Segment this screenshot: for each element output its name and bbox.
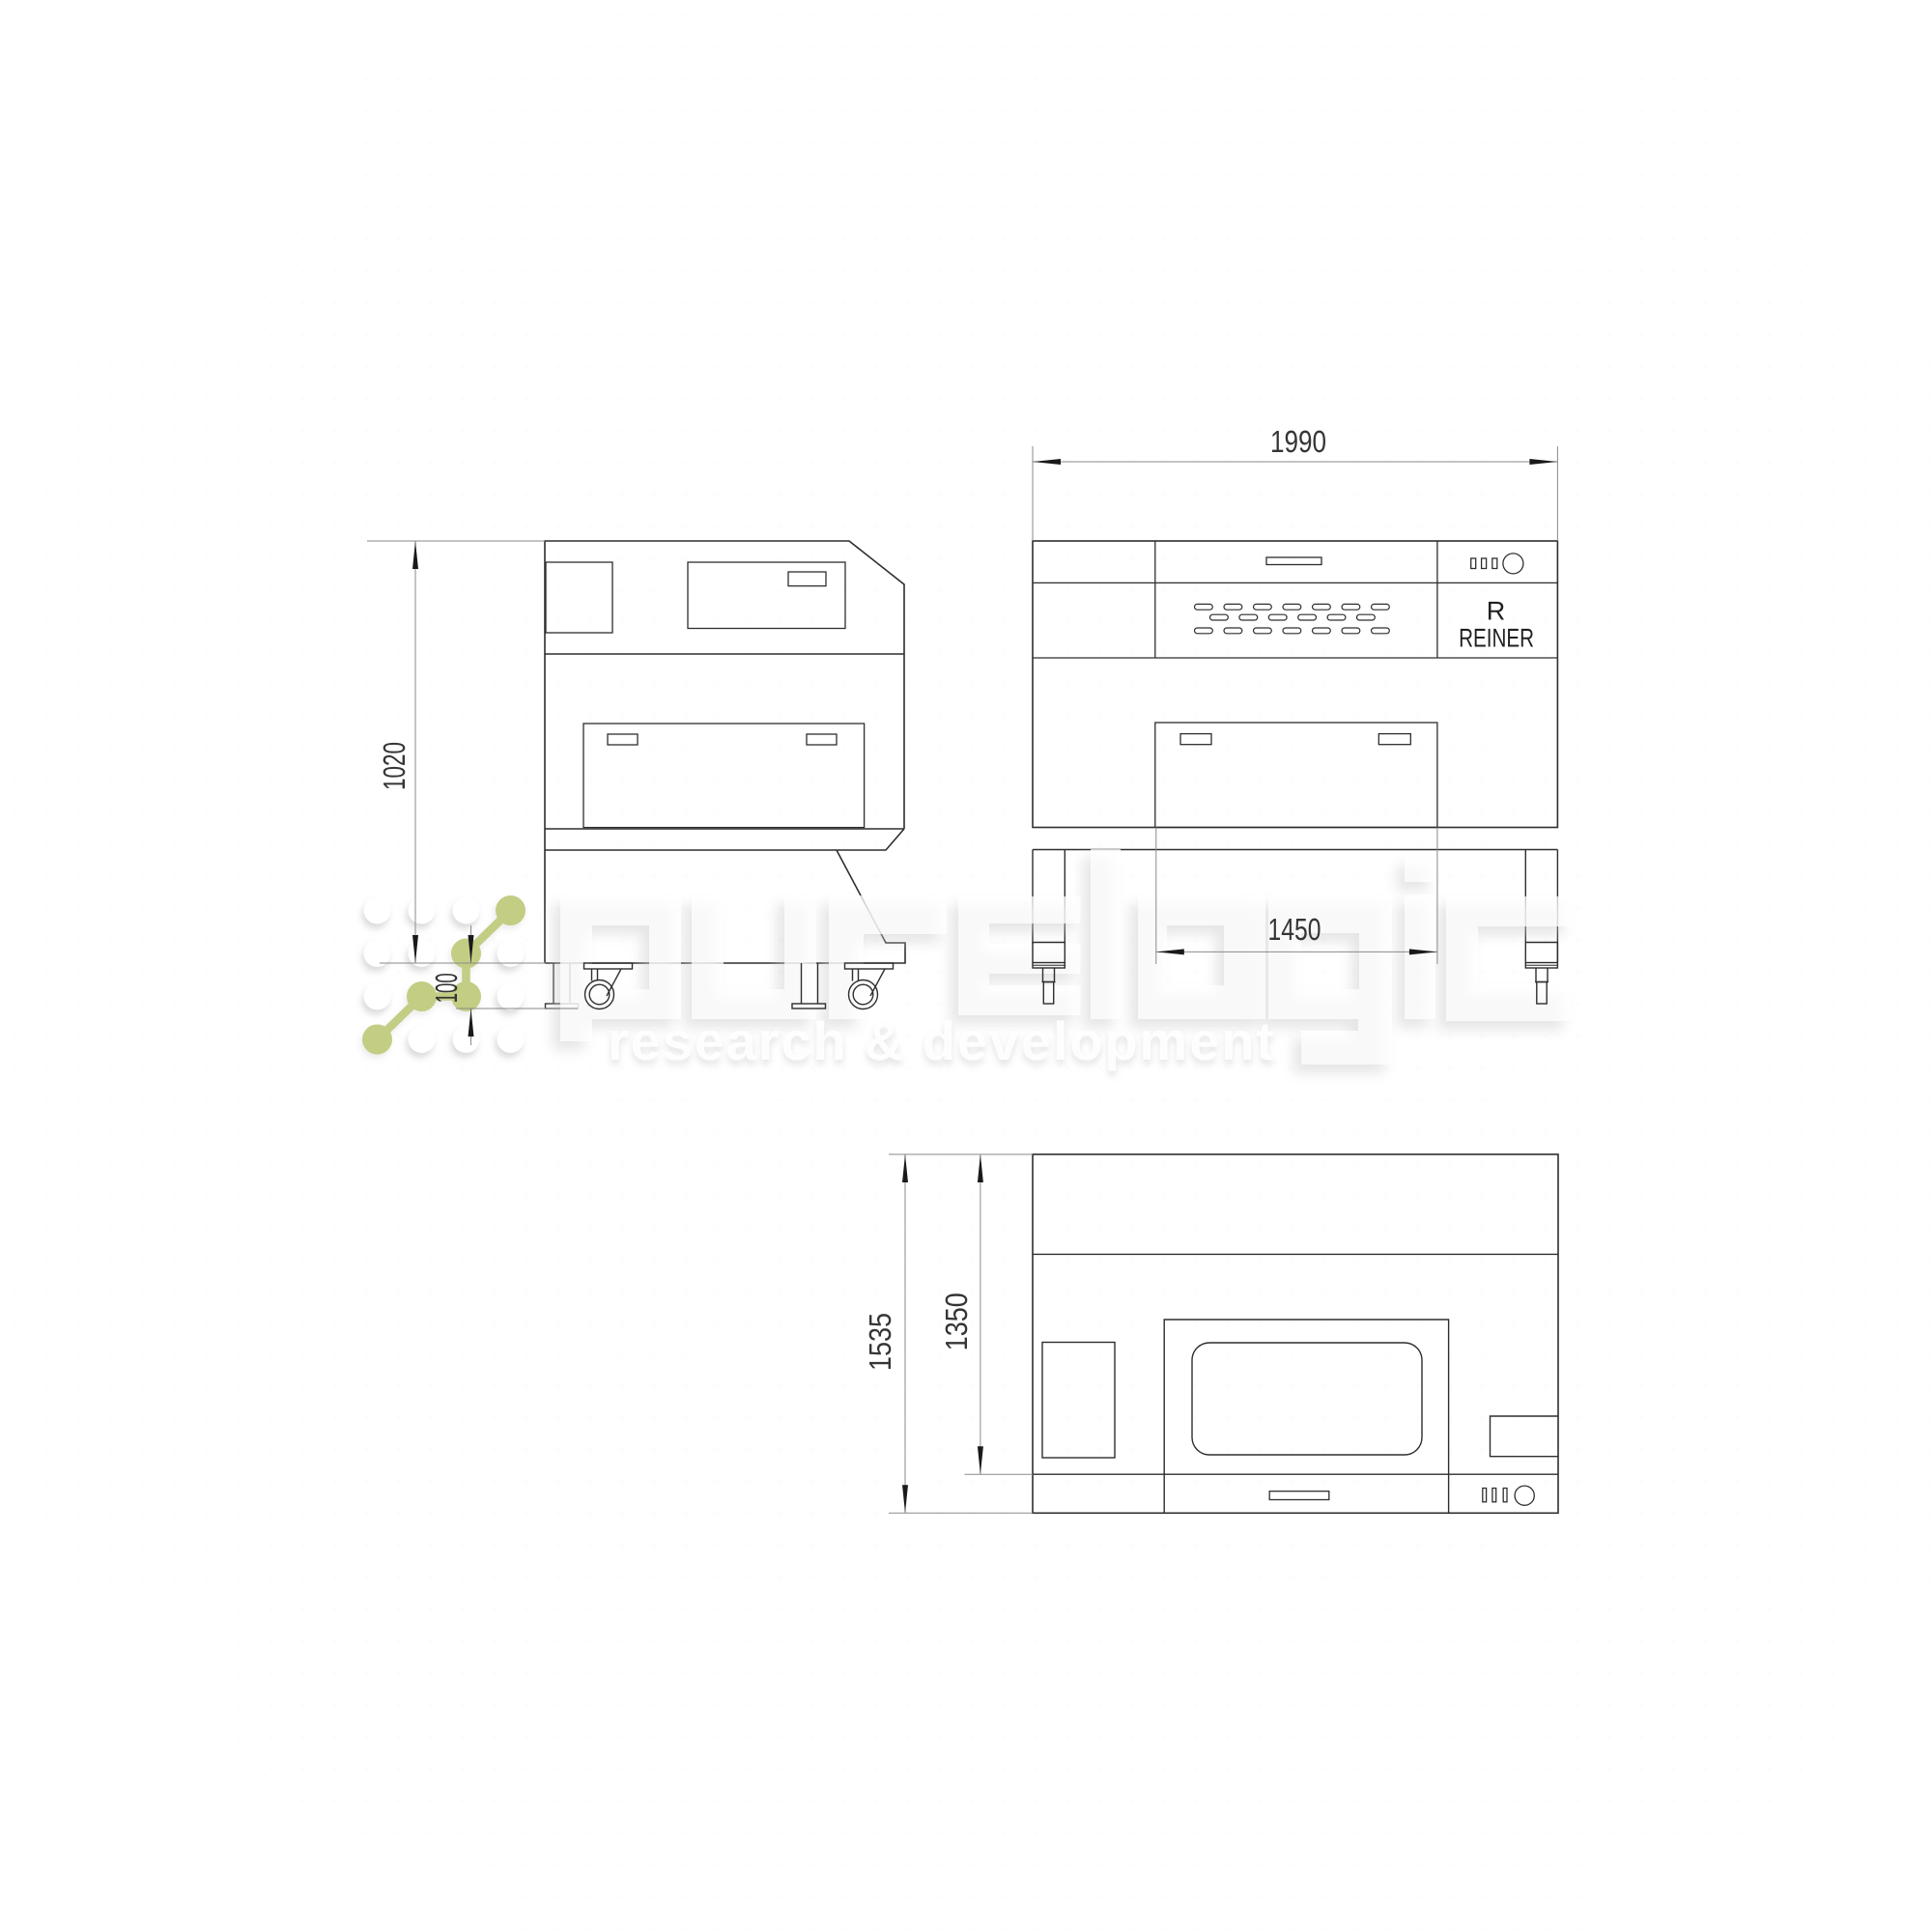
svg-text:1020: 1020 xyxy=(377,742,412,790)
svg-text:research & development: research & development xyxy=(608,1010,1274,1071)
svg-text:1990: 1990 xyxy=(1270,424,1326,459)
svg-text:REINER: REINER xyxy=(1459,624,1534,653)
svg-text:100: 100 xyxy=(429,973,464,1003)
svg-text:1350: 1350 xyxy=(939,1293,974,1350)
svg-text:1535: 1535 xyxy=(863,1313,897,1371)
svg-text:R: R xyxy=(1487,597,1506,626)
svg-text:1450: 1450 xyxy=(1268,912,1321,947)
